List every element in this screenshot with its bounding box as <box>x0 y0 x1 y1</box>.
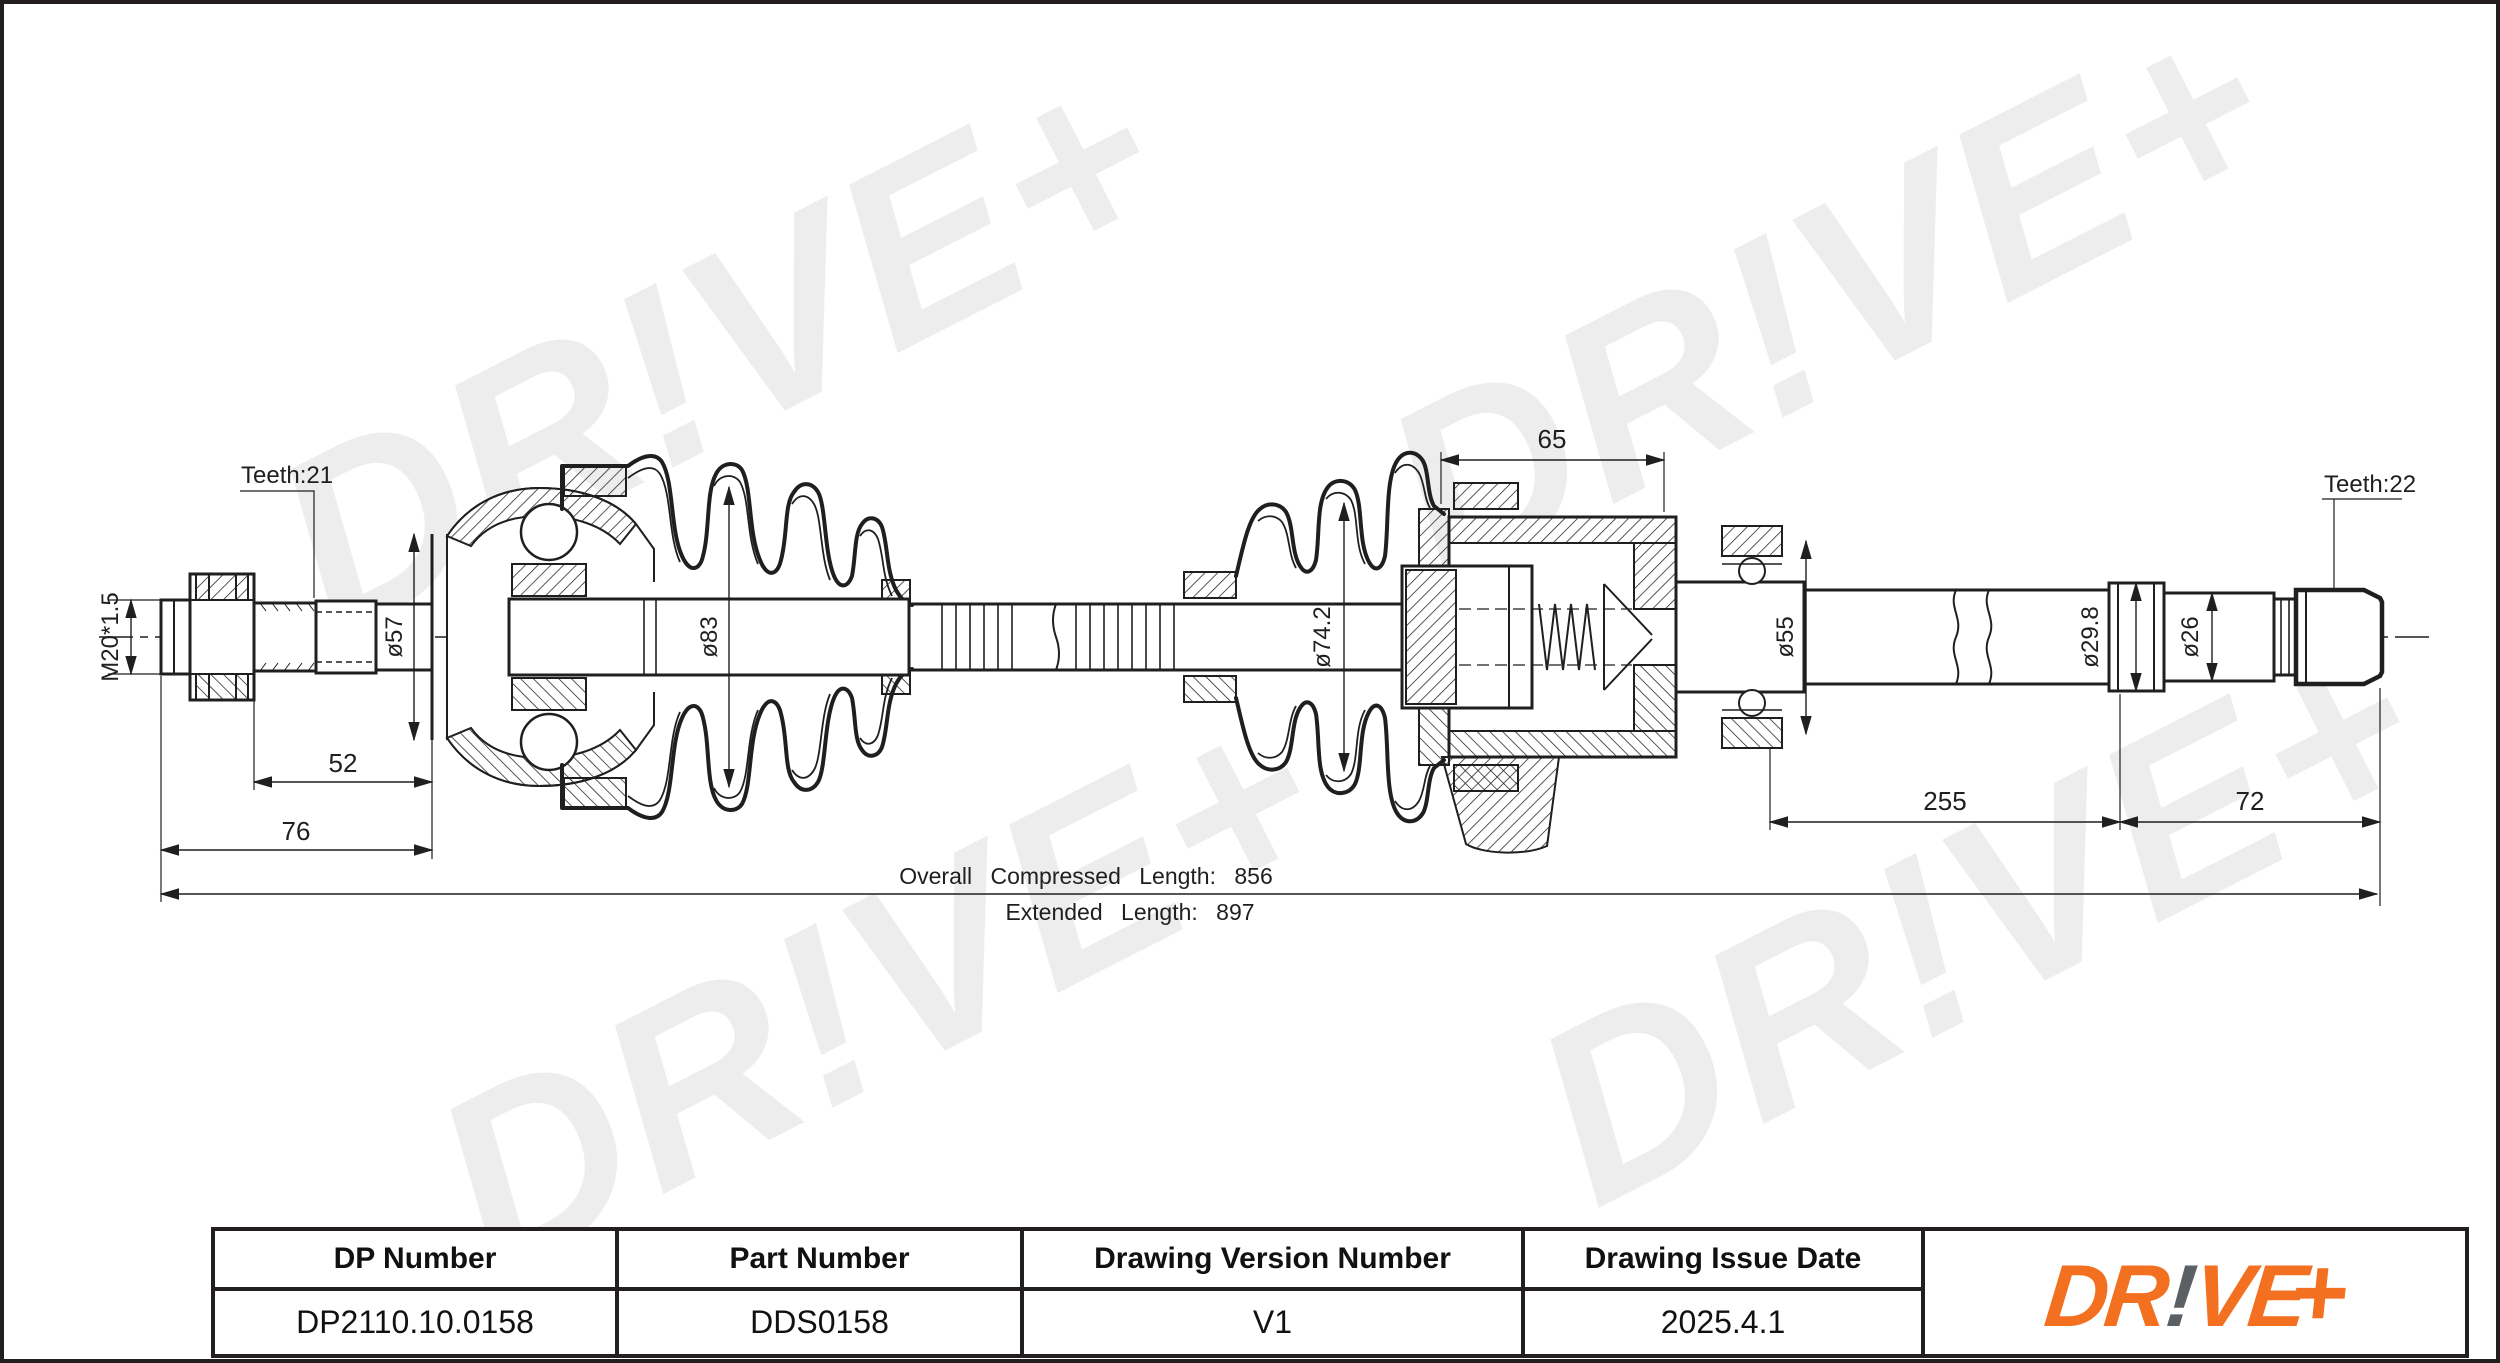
part-number-header: Part Number <box>619 1231 1024 1291</box>
issue-date-value: 2025.4.1 <box>1525 1291 1925 1354</box>
dim-teeth-left: Teeth:21 <box>241 462 333 489</box>
dim-d298: ø29.8 <box>2077 606 2104 667</box>
title-block: DP Number Part Number Drawing Version Nu… <box>211 1227 2469 1358</box>
joint-interior <box>432 534 2306 853</box>
dim-255: 255 <box>1923 786 1966 816</box>
dim-72: 72 <box>2236 786 2265 816</box>
dim-d742: ø74.2 <box>1309 606 1336 667</box>
dp-number-value: DP2110.10.0158 <box>215 1291 619 1354</box>
dim-d26: ø26 <box>2177 616 2204 657</box>
drawing-version-header: Drawing Version Number <box>1024 1231 1525 1291</box>
dim-d55: ø55 <box>1772 616 1799 657</box>
dim-76: 76 <box>282 816 311 846</box>
driveshaft-technical-drawing: M20*1.5 Teeth:21 ø57 ø83 52 76 65 ø74.2 <box>4 4 2500 1363</box>
drawing-version-value: V1 <box>1024 1291 1525 1354</box>
dim-d83: ø83 <box>696 616 723 657</box>
dim-52: 52 <box>329 748 358 778</box>
logo-part1: DR <box>2041 1246 2171 1345</box>
part-number-value: DDS0158 <box>619 1291 1024 1354</box>
logo-plus: + <box>2284 1237 2349 1347</box>
dim-compressed-length: Overall Compressed Length: 856 <box>899 863 1273 889</box>
dim-65: 65 <box>1538 424 1567 454</box>
dim-thread: M20*1.5 <box>97 592 124 681</box>
dim-extended-length: Extended Length: 897 <box>1005 899 1254 925</box>
dp-number-header: DP Number <box>215 1231 619 1291</box>
dim-d57: ø57 <box>381 616 408 657</box>
dim-teeth-right: Teeth:22 <box>2324 471 2416 498</box>
issue-date-header: Drawing Issue Date <box>1525 1231 1925 1291</box>
brand-logo: DR!VE+ <box>1925 1231 2465 1354</box>
drawing-sheet: DR!VE+ DR!VE+ DR!VE+ DR!VE+ <box>0 0 2500 1363</box>
